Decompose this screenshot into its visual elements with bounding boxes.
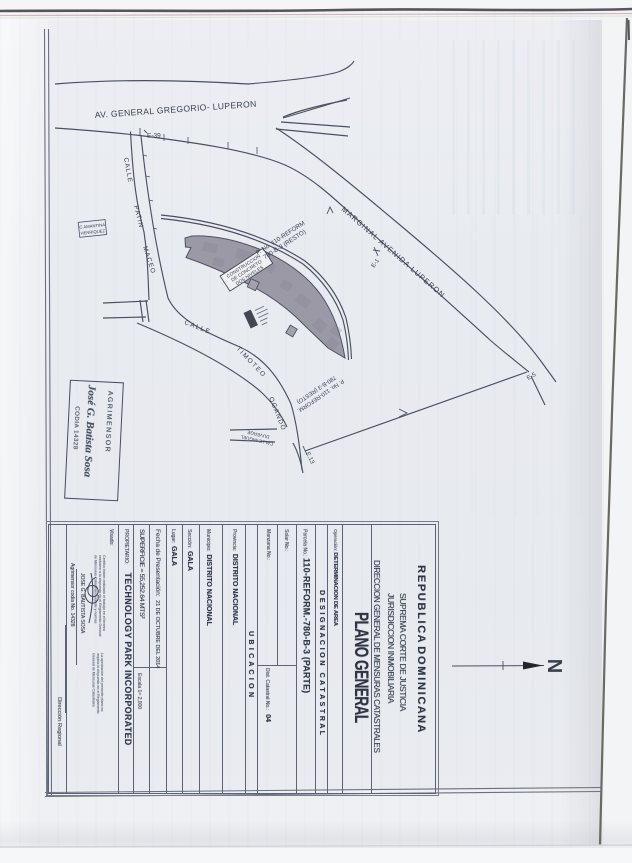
svg-text:CALLE: CALLE bbox=[183, 319, 212, 336]
svg-text:E-5: E-5 bbox=[526, 372, 538, 382]
svg-text:E-1: E-1 bbox=[371, 258, 382, 270]
svg-text:E.13: E.13 bbox=[304, 451, 315, 465]
svg-text:OGANDO: OGANDO bbox=[267, 396, 287, 432]
svg-text:PATIN: PATIN bbox=[132, 205, 144, 229]
svg-text:CALLE: CALLE bbox=[122, 157, 133, 183]
svg-text:AV. GENERAL GREGORIO- LUPERO: AV. GENERAL GREGORIO- LUPERON bbox=[94, 99, 256, 120]
svg-text:E-39: E-39 bbox=[147, 133, 161, 140]
svg-text:N: N bbox=[543, 659, 565, 673]
svg-text:MACEO: MACEO bbox=[141, 245, 157, 275]
